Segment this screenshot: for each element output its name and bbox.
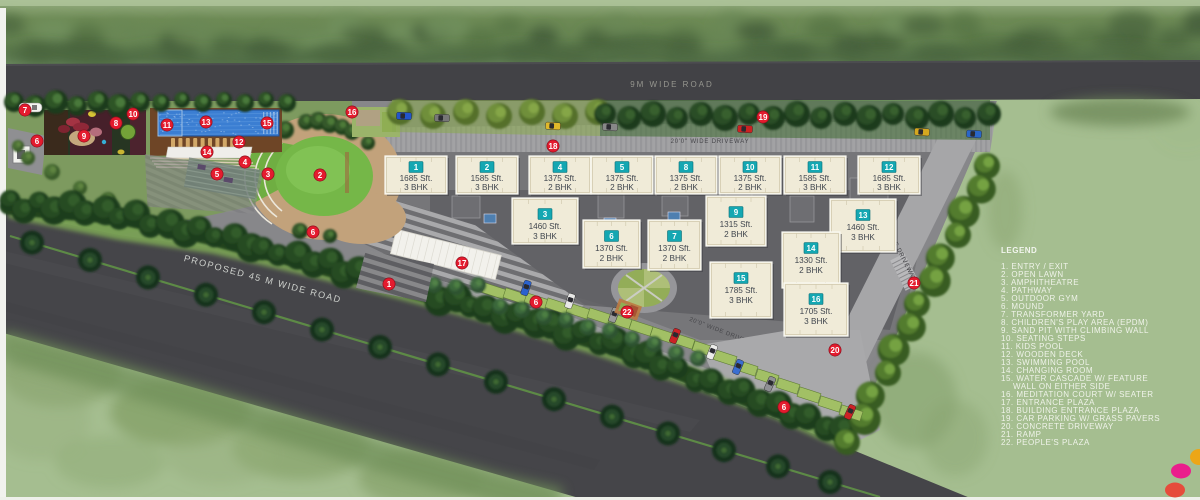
svg-text:1785 Sft.: 1785 Sft. [725,286,758,295]
svg-text:2 BHK: 2 BHK [663,254,687,263]
svg-text:11: 11 [163,121,172,130]
svg-text:15: 15 [263,119,272,128]
svg-text:8: 8 [684,163,689,172]
svg-text:6: 6 [782,403,787,412]
svg-text:3 BHK: 3 BHK [475,183,499,192]
svg-text:20: 20 [831,346,840,355]
svg-text:2 BHK: 2 BHK [600,254,624,263]
svg-text:19: 19 [759,113,768,122]
svg-text:9: 9 [734,208,739,217]
svg-text:2 BHK: 2 BHK [738,183,762,192]
svg-text:12: 12 [885,163,894,172]
svg-text:6: 6 [311,228,316,237]
svg-text:7: 7 [23,106,28,115]
svg-text:1375 Sft.: 1375 Sft. [606,174,639,183]
svg-text:6: 6 [534,298,539,307]
svg-text:17: 17 [458,259,467,268]
svg-text:1: 1 [387,280,392,289]
svg-text:22: 22 [623,308,632,317]
svg-text:13: 13 [859,211,868,220]
svg-text:1370 Sft.: 1370 Sft. [595,244,628,253]
svg-text:3 BHK: 3 BHK [533,232,557,241]
svg-text:12: 12 [235,138,244,147]
svg-text:7: 7 [672,232,677,241]
svg-text:3 BHK: 3 BHK [803,183,827,192]
svg-text:4: 4 [558,163,563,172]
svg-text:2 BHK: 2 BHK [799,266,823,275]
svg-text:3 BHK: 3 BHK [404,183,428,192]
svg-text:3: 3 [543,210,548,219]
svg-text:9: 9 [82,132,87,141]
svg-text:LEGEND: LEGEND [1001,246,1037,255]
svg-text:13: 13 [202,118,211,127]
svg-text:6: 6 [609,232,614,241]
svg-text:4: 4 [243,158,248,167]
svg-text:10: 10 [129,110,138,119]
svg-text:1: 1 [414,163,419,172]
svg-text:1375 Sft.: 1375 Sft. [734,174,767,183]
svg-text:1585 Sft.: 1585 Sft. [799,174,832,183]
svg-text:5: 5 [620,163,625,172]
svg-text:16: 16 [812,295,821,304]
svg-text:2 BHK: 2 BHK [610,183,634,192]
svg-text:3 BHK: 3 BHK [851,233,875,242]
svg-text:3: 3 [266,170,271,179]
svg-text:1375 Sft.: 1375 Sft. [544,174,577,183]
svg-text:9M WIDE ROAD: 9M WIDE ROAD [630,80,714,89]
svg-text:1460 Sft.: 1460 Sft. [529,222,562,231]
svg-text:2: 2 [318,171,323,180]
svg-text:2 BHK: 2 BHK [674,183,698,192]
svg-text:15: 15 [737,274,746,283]
svg-text:1585 Sft.: 1585 Sft. [471,174,504,183]
svg-text:21: 21 [910,279,919,288]
svg-text:1685 Sft.: 1685 Sft. [400,174,433,183]
svg-text:22. PEOPLE'S PLAZA: 22. PEOPLE'S PLAZA [1001,438,1090,447]
svg-text:1370 Sft.: 1370 Sft. [658,244,691,253]
svg-text:2: 2 [485,163,490,172]
svg-text:3 BHK: 3 BHK [804,317,828,326]
svg-text:10: 10 [746,163,755,172]
svg-text:3 BHK: 3 BHK [877,183,901,192]
svg-text:14: 14 [203,148,212,157]
svg-text:8: 8 [114,119,119,128]
svg-text:5: 5 [215,170,220,179]
svg-text:18: 18 [549,142,558,151]
svg-text:3 BHK: 3 BHK [729,296,753,305]
svg-text:20'0" WIDE DRIVEWAY: 20'0" WIDE DRIVEWAY [671,139,750,145]
svg-text:1685 Sft.: 1685 Sft. [873,174,906,183]
svg-text:2 BHK: 2 BHK [548,183,572,192]
svg-text:2 BHK: 2 BHK [724,230,748,239]
svg-text:11: 11 [811,163,820,172]
svg-text:1460 Sft.: 1460 Sft. [847,223,880,232]
svg-text:1315 Sft.: 1315 Sft. [720,220,753,229]
svg-text:1705 Sft.: 1705 Sft. [800,307,833,316]
svg-text:16: 16 [348,108,357,117]
svg-text:14: 14 [807,244,816,253]
svg-text:1330 Sft.: 1330 Sft. [795,256,828,265]
svg-text:6: 6 [35,137,40,146]
svg-text:1375 Sft.: 1375 Sft. [670,174,703,183]
